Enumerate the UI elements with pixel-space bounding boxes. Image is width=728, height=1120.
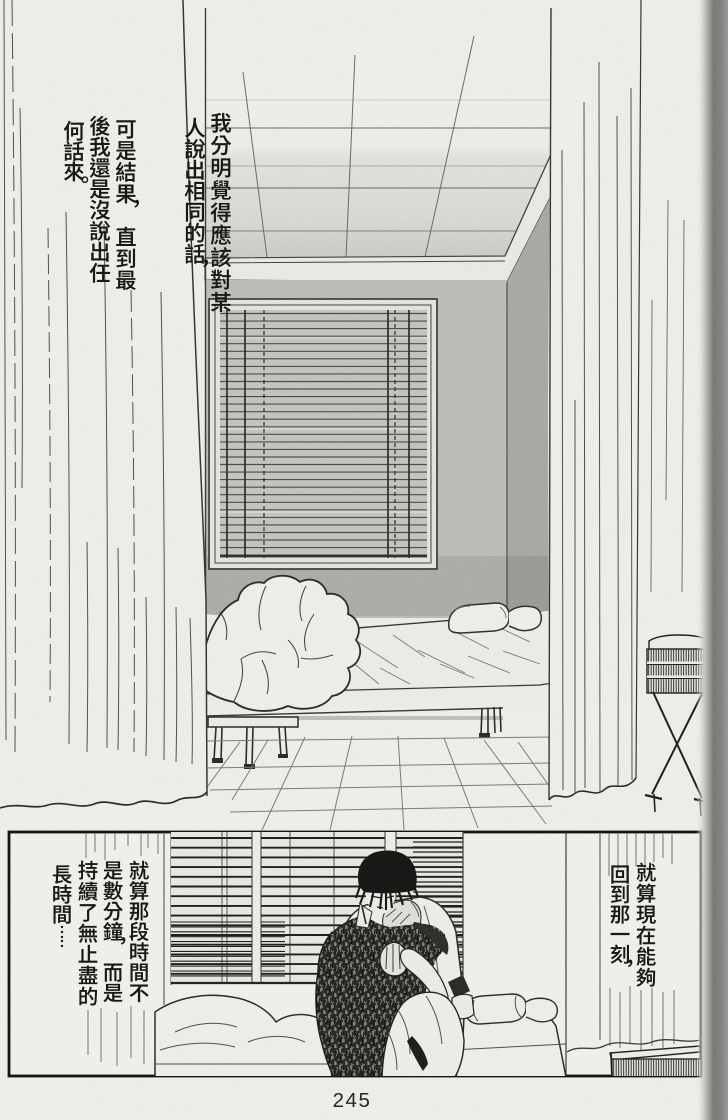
svg-text:245: 245 (333, 1089, 372, 1112)
